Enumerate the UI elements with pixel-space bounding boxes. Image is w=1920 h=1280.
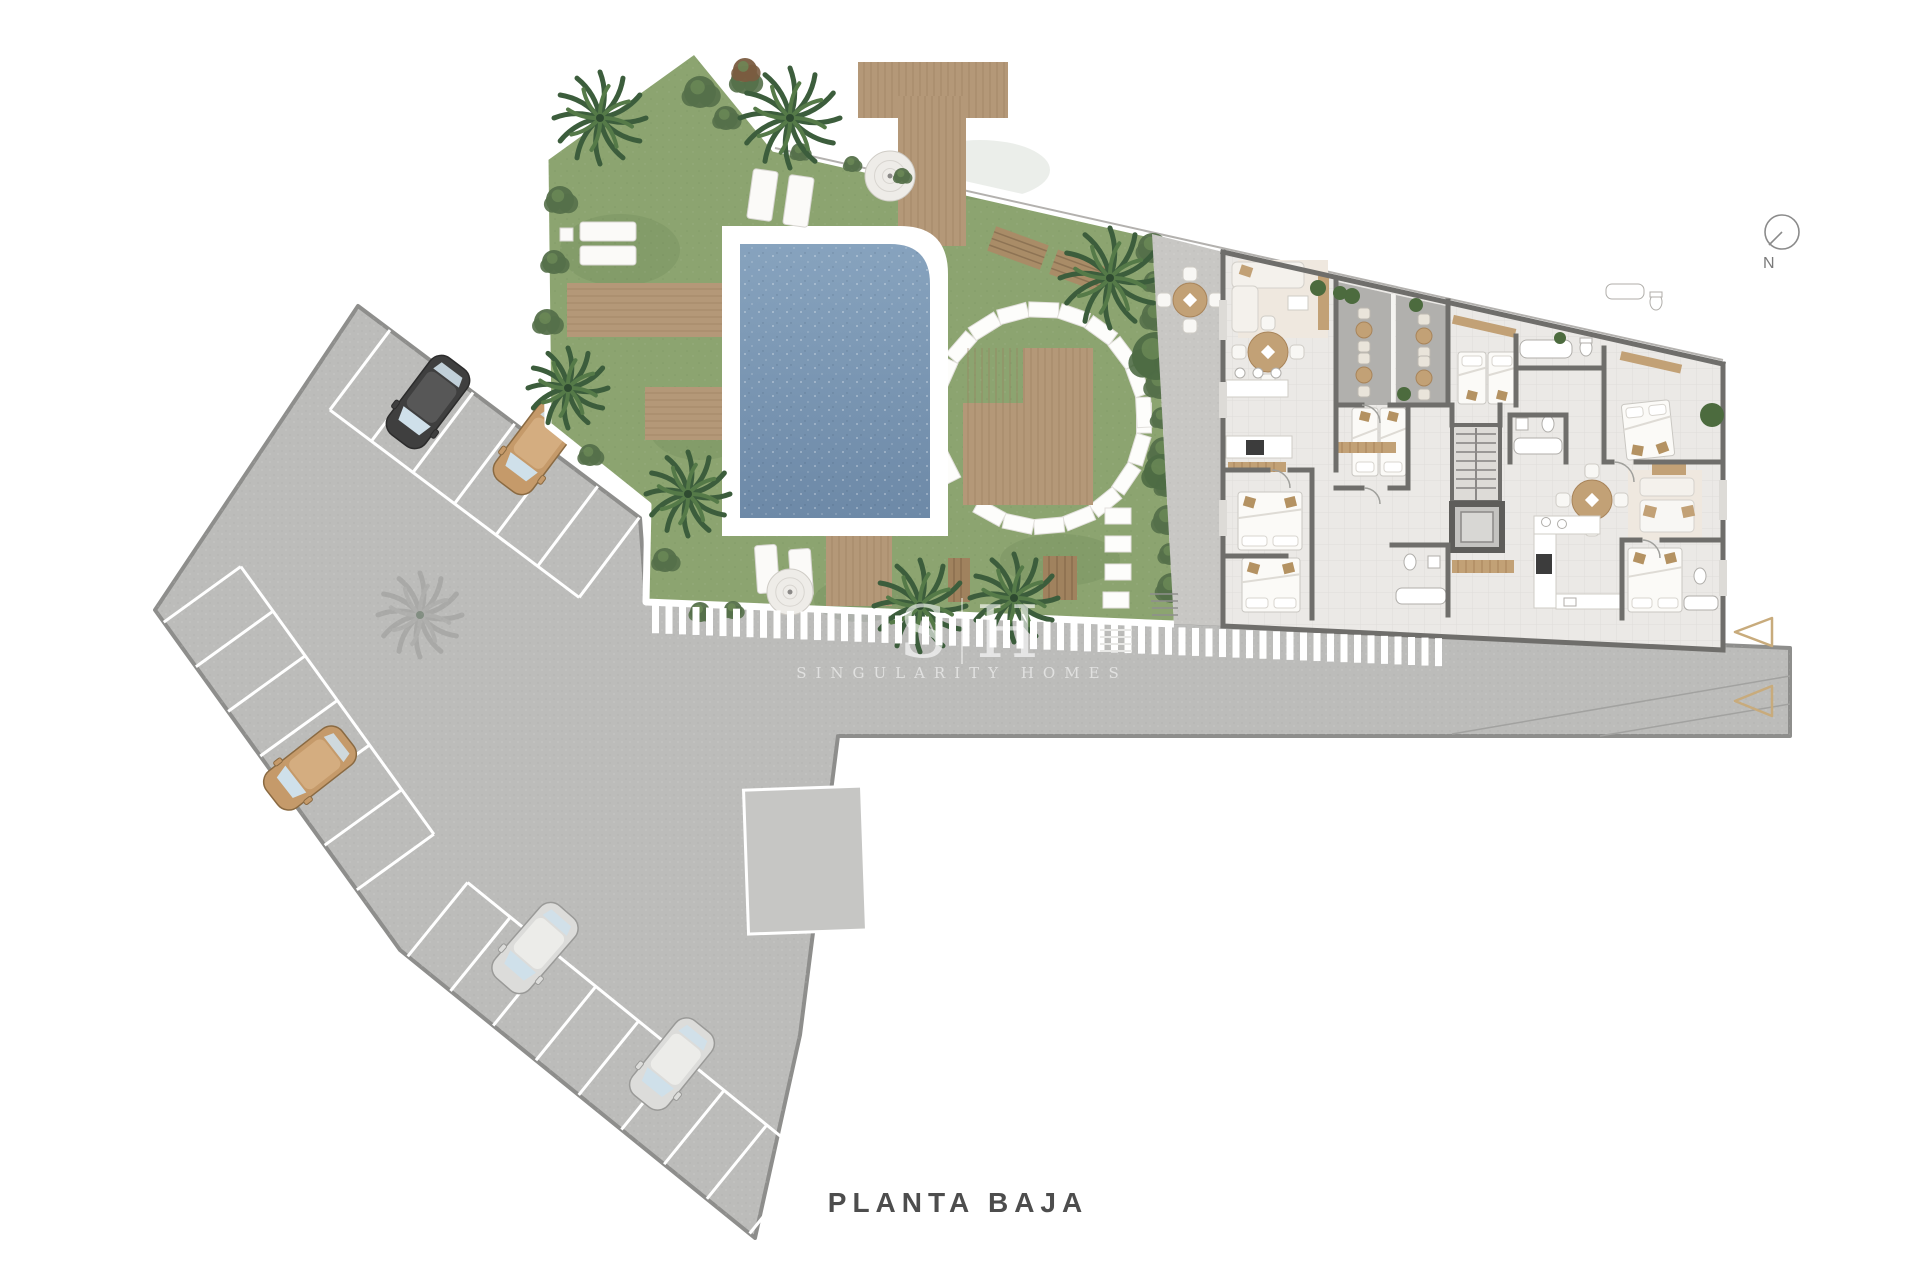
crosswalk-bar (1179, 627, 1186, 655)
bistro-set (1356, 353, 1372, 397)
crosswalk-bar (1044, 622, 1051, 650)
tree-building-edge (1700, 403, 1724, 427)
crosswalk-bar (1233, 630, 1240, 658)
north-label: N (1763, 255, 1775, 272)
crosswalk-bar (652, 605, 659, 633)
crosswalk-bar (1395, 636, 1402, 664)
sun-lounger (580, 246, 636, 265)
crosswalk-bar (720, 608, 727, 636)
crosswalk-bar (841, 613, 848, 641)
crosswalk-bar (1138, 626, 1145, 654)
shrub-icon (731, 58, 760, 82)
crosswalk-bar (1435, 638, 1442, 666)
crosswalk-bar (855, 614, 862, 642)
stepping-stone (1136, 397, 1153, 428)
crosswalk-bar (1422, 638, 1429, 666)
bed-double (1621, 400, 1675, 461)
bed-double (1628, 548, 1682, 612)
pool (722, 226, 948, 536)
crosswalk-bar (1273, 631, 1280, 659)
watermark-initial-right: H (976, 590, 1039, 674)
crosswalk-bar (706, 608, 713, 636)
crosswalk-bar (1341, 634, 1348, 662)
bistro-set (1416, 314, 1432, 358)
crosswalk-bar (760, 610, 767, 638)
watermark-name: SINGULARITY HOMES (796, 664, 1128, 682)
crosswalk-bar (1287, 632, 1294, 660)
crosswalk-bar (1206, 628, 1213, 656)
triangle-marker (1735, 618, 1772, 646)
crosswalk-bar (679, 606, 686, 634)
crosswalk-bar (1300, 632, 1307, 660)
crosswalk-bar (801, 611, 808, 639)
crosswalk-bar (733, 609, 740, 637)
crosswalk-bar (1111, 625, 1118, 653)
ground-floor-plan: N S H SINGULARITY HOMES PLANTA BAJA (0, 0, 1920, 1280)
bed-double (1238, 492, 1302, 550)
stepping-stone (1033, 517, 1064, 535)
crosswalk-bar (1368, 635, 1375, 663)
parasol-icon (767, 569, 813, 615)
stairwell (1452, 425, 1500, 502)
crosswalk-bar (1381, 636, 1388, 664)
crosswalk-bar (1354, 635, 1361, 663)
crosswalk-bar (1314, 633, 1321, 661)
crosswalk-bar (868, 614, 875, 642)
crosswalk-bar (963, 618, 970, 646)
crosswalk-bar (693, 607, 700, 635)
road-marked-bay (744, 786, 867, 934)
deck-right-platform (963, 348, 1093, 505)
stepping-stone (1105, 536, 1131, 552)
bistro-set (1356, 308, 1372, 352)
elevator (1452, 504, 1502, 550)
crosswalk-bar (1165, 627, 1172, 655)
crosswalk-bar (747, 609, 754, 637)
crosswalk-bar (882, 615, 889, 643)
compass-needle-icon (1769, 232, 1782, 245)
side-table (560, 228, 573, 241)
bed-double (1242, 558, 1300, 612)
stepping-stone (1105, 508, 1131, 524)
stepping-stone (1105, 564, 1131, 580)
crosswalk-bar (1246, 630, 1253, 658)
plan-title: PLANTA BAJA (828, 1187, 1088, 1218)
bed-single (1458, 352, 1486, 404)
crosswalk-bar (666, 606, 673, 634)
crosswalk-bar (828, 613, 835, 641)
sun-lounger (580, 222, 636, 241)
bed-single (1488, 352, 1516, 404)
tv-unit-right (1652, 464, 1686, 475)
crosswalk-bar (1192, 628, 1199, 656)
crosswalk-bar (1071, 623, 1078, 651)
crosswalk-bar (1057, 622, 1064, 650)
crosswalk-bar (1260, 631, 1267, 659)
site-plan-page: N S H SINGULARITY HOMES PLANTA BAJA (0, 0, 1920, 1280)
building (1219, 252, 1727, 650)
crosswalk-bar (1084, 623, 1091, 651)
stepping-stone (1028, 302, 1059, 318)
crosswalk-bar (1327, 634, 1334, 662)
pool-water-sparkle (740, 244, 930, 518)
compass: N (1763, 215, 1799, 272)
crosswalk-bar (774, 610, 781, 638)
stepping-stone (1103, 592, 1129, 608)
bistro-set (1416, 356, 1432, 400)
crosswalk-bar (1219, 629, 1226, 657)
watermark-initial-left: S (899, 590, 948, 674)
crosswalk-bar (1152, 626, 1159, 654)
crosswalk-bar (814, 612, 821, 640)
crosswalk-bar (949, 618, 956, 646)
crosswalk-bar (1408, 637, 1415, 665)
crosswalk-bar (787, 611, 794, 639)
